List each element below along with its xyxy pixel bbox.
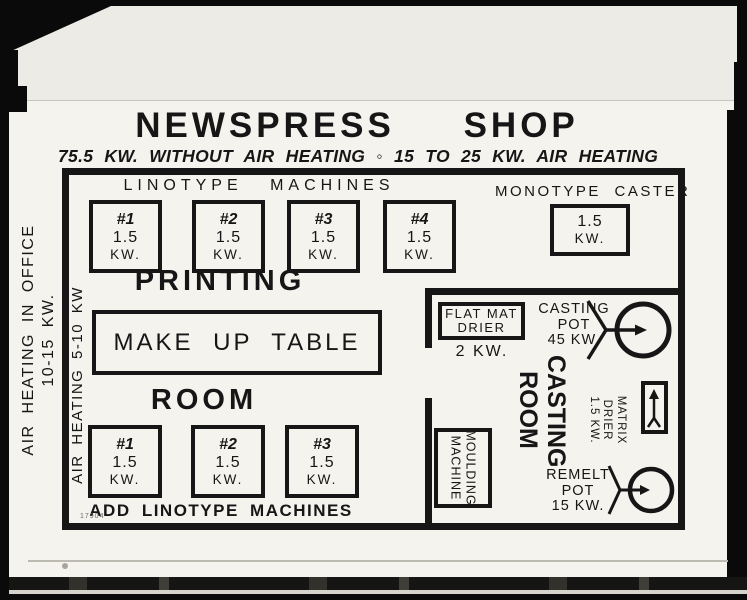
remelt-pot-icon [607,462,677,520]
matrix-drier-box [641,381,668,434]
machine-kw: 1.5 [113,229,138,247]
machine-kw: 1.5 [309,454,334,472]
office-air-heating-kw: 10-15 KW. [39,175,59,505]
machine-number: #1 [117,211,135,229]
flat-mat-drier-line2: DRIER [458,321,506,336]
machine-kw: 1.5 [577,213,602,231]
monotype-caster-label: MONOTYPE CASTER [495,183,655,200]
machine-kw: 1.5 [311,229,336,247]
machine-unit: KW. [575,231,606,247]
photo-frame-background: NEWSPRESS SHOP 75.5 KW. WITHOUT AIR HEAT… [0,0,747,600]
paper-top-strip [9,6,737,101]
add-linotype-label: ADD LINOTYPE MACHINES [83,501,359,521]
machine-unit: KW. [110,247,141,263]
machine-number: #3 [315,211,333,229]
machine-unit: KW. [110,472,141,488]
linotype-machine-3-box: #3 1.5 KW. [287,200,360,273]
casting-room-wall-top [425,288,678,295]
floor-plan-frame: LINOTYPE MACHINES #1 1.5 KW. #2 1.5 KW. … [62,168,685,530]
film-edge-bottom [9,577,747,590]
flat-mat-drier-box: FLAT MAT DRIER [438,302,525,340]
machine-kw: 1.5 [407,229,432,247]
machine-unit: KW. [213,472,244,488]
moulding-machine-line2: MACHINE [449,430,464,506]
monotype-caster-box: 1.5 KW. [550,204,630,256]
film-edge-bottom-strip [9,590,747,594]
matrix-drier-line3: 1.5 KW. [587,377,601,463]
corner-shadow-triangle [9,6,111,52]
sheet-edge-line [28,560,728,562]
printing-room-label-printing: PRINTING [90,265,350,298]
linotype-machine-4-box: #4 1.5 KW. [383,200,456,273]
film-edge-right [727,110,747,600]
make-up-table-box: MAKE UP TABLE [92,310,382,375]
moulding-machine-box: MOULDING MACHINE [434,428,492,508]
linotype-machine-2-box: #2 1.5 KW. [192,200,265,273]
matrix-drier-arrow-icon [645,385,664,430]
machine-unit: KW. [308,247,339,263]
add-linotype-machine-3-box: #3 1.5 KW. [285,425,359,498]
machine-kw: 1.5 [216,229,241,247]
office-air-heating-label: AIR HEATING IN OFFICE 10-15 KW. [19,175,59,505]
film-edge-notch [9,50,18,88]
matrix-drier-line1: MATRIX [614,377,628,463]
casting-room-label: CASTING ROOM [512,355,570,465]
linotype-section-label: LINOTYPE MACHINES [108,177,410,195]
shop-title: NEWSPRESS SHOP [62,106,652,146]
matrix-drier-line2: DRIER [600,377,614,463]
machine-number: #1 [116,436,134,454]
machine-number: #2 [220,211,238,229]
casting-room-wall-lower [425,398,432,523]
moulding-machine-label: MOULDING MACHINE [449,430,478,506]
casting-room-label-line2: ROOM [514,355,542,465]
punch-hole [62,563,68,569]
matrix-drier-label: MATRIX DRIER 1.5 KW. [585,377,627,463]
moulding-machine-line1: MOULDING [463,430,478,506]
film-edge-right-line [734,62,737,112]
machine-kw: 1.5 [215,454,240,472]
machine-kw: 1.5 [112,454,137,472]
flat-mat-drier-kw: 2 KW. [441,343,523,361]
power-summary-subtitle: 75.5 KW. WITHOUT AIR HEATING ◦ 15 TO 25 … [58,146,658,167]
flat-mat-drier-line1: FLAT MAT [445,307,518,322]
casting-pot-icon [585,298,685,364]
casting-room-wall-upper [425,288,432,348]
film-edge-notch [9,86,27,112]
office-air-heating-text: AIR HEATING IN OFFICE [19,175,39,505]
machine-unit: KW. [404,247,435,263]
machine-unit: KW. [213,247,244,263]
printing-room-label-room: ROOM [104,384,304,417]
drawing-stamp: 17904 [80,513,104,520]
machine-number: #3 [313,436,331,454]
machine-unit: KW. [307,472,338,488]
machine-number: #4 [411,211,429,229]
machine-number: #2 [219,436,237,454]
casting-room-label-line1: CASTING [542,355,570,465]
linotype-machine-1-box: #1 1.5 KW. [89,200,162,273]
add-linotype-machine-1-box: #1 1.5 KW. [88,425,162,498]
add-linotype-machine-2-box: #2 1.5 KW. [191,425,265,498]
